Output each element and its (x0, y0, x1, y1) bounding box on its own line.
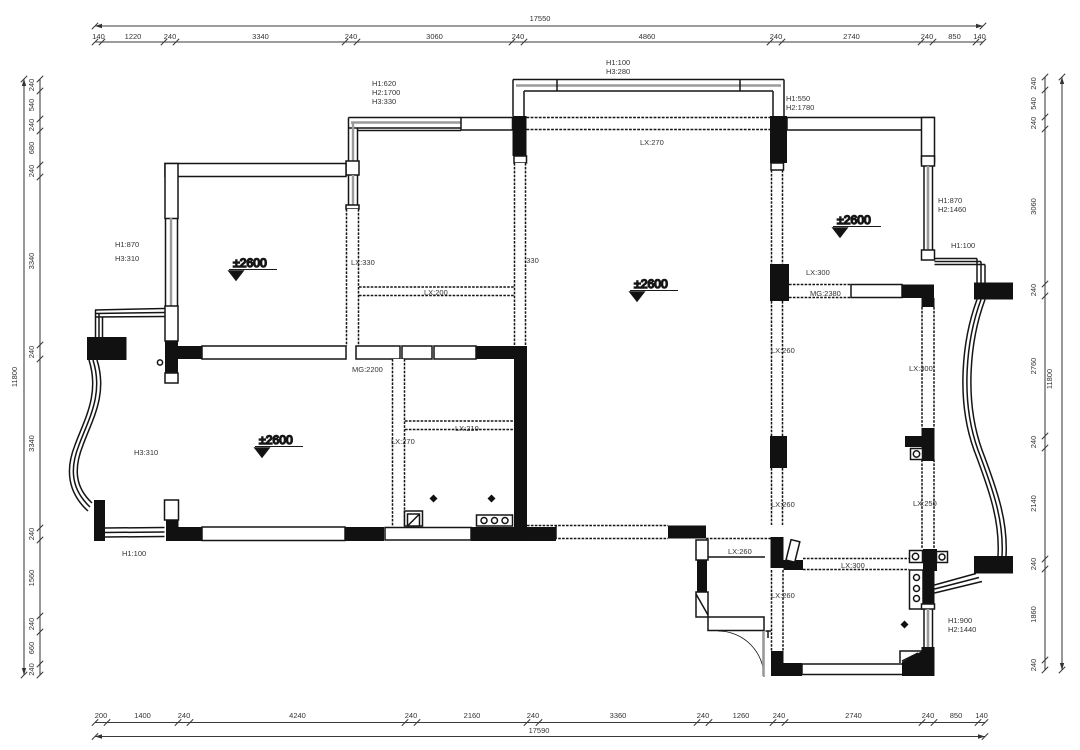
svg-text:LX:260: LX:260 (771, 591, 795, 600)
svg-text:LX:300: LX:300 (806, 268, 830, 277)
svg-text:140: 140 (92, 32, 105, 41)
svg-text:LX:260: LX:260 (771, 346, 795, 355)
svg-text:4860: 4860 (639, 32, 656, 41)
svg-text:2140: 2140 (1029, 495, 1038, 512)
svg-text:11800: 11800 (10, 367, 19, 387)
svg-text:240: 240 (697, 711, 710, 720)
svg-text:MG:2200: MG:2200 (352, 365, 383, 374)
svg-text:3340: 3340 (27, 253, 36, 270)
svg-text:LX:250: LX:250 (913, 499, 937, 508)
svg-text:H2:1440: H2:1440 (948, 625, 976, 634)
svg-text:240: 240 (164, 32, 177, 41)
svg-text:H3:310: H3:310 (134, 448, 158, 457)
svg-text:2740: 2740 (845, 711, 862, 720)
svg-text:2740: 2740 (843, 32, 860, 41)
svg-text:240: 240 (178, 711, 191, 720)
svg-text:240: 240 (1029, 284, 1038, 297)
svg-text:240: 240 (770, 32, 783, 41)
svg-text:140: 140 (973, 32, 986, 41)
svg-text:H2:1780: H2:1780 (786, 103, 814, 112)
svg-text:H2:1460: H2:1460 (938, 205, 966, 214)
svg-text:3340: 3340 (27, 435, 36, 452)
svg-text:1220: 1220 (125, 32, 142, 41)
svg-text:240: 240 (512, 32, 525, 41)
svg-text:240: 240 (527, 711, 540, 720)
svg-text:17590: 17590 (529, 726, 550, 735)
svg-text:LX:300: LX:300 (841, 561, 865, 570)
svg-text:240: 240 (27, 663, 36, 676)
svg-text:1260: 1260 (733, 711, 750, 720)
svg-text:LX:210: LX:210 (455, 424, 479, 433)
svg-text:680: 680 (27, 142, 36, 155)
svg-text:240: 240 (27, 165, 36, 178)
svg-text:3060: 3060 (1029, 198, 1038, 215)
svg-text:H1:550: H1:550 (786, 94, 810, 103)
svg-text:240: 240 (922, 711, 935, 720)
svg-text:660: 660 (27, 642, 36, 655)
svg-text:2760: 2760 (1029, 358, 1038, 375)
svg-text:240: 240 (27, 119, 36, 132)
svg-text:240: 240 (1029, 436, 1038, 449)
svg-text:540: 540 (1029, 97, 1038, 110)
svg-text:240: 240 (1029, 558, 1038, 571)
svg-text:140: 140 (975, 711, 988, 720)
svg-text:240: 240 (1029, 117, 1038, 130)
svg-text:4240: 4240 (289, 711, 306, 720)
svg-text:LX:260: LX:260 (771, 500, 795, 509)
svg-text:17550: 17550 (530, 14, 551, 23)
svg-text:11800: 11800 (1045, 369, 1054, 389)
svg-text:240: 240 (27, 79, 36, 92)
svg-text:H1:900: H1:900 (948, 616, 972, 625)
svg-text:H3:330: H3:330 (372, 97, 396, 106)
svg-text:H1:100: H1:100 (122, 549, 146, 558)
svg-text:H1:100: H1:100 (951, 241, 975, 250)
svg-text:LX:330: LX:330 (351, 258, 375, 267)
svg-text:H1:100: H1:100 (606, 58, 630, 67)
svg-text:1560: 1560 (27, 570, 36, 587)
svg-text:240: 240 (405, 711, 418, 720)
svg-text:240: 240 (921, 32, 934, 41)
svg-text:3360: 3360 (610, 711, 627, 720)
svg-text:MG:2380: MG:2380 (810, 289, 841, 298)
svg-text:850: 850 (950, 711, 963, 720)
svg-text:H1:620: H1:620 (372, 79, 396, 88)
svg-text:H3:280: H3:280 (606, 67, 630, 76)
svg-text:LX:260: LX:260 (728, 547, 752, 556)
svg-text:540: 540 (27, 99, 36, 112)
svg-text:240: 240 (773, 711, 786, 720)
svg-text:2160: 2160 (464, 711, 481, 720)
svg-text:3060: 3060 (426, 32, 443, 41)
svg-text:240: 240 (1029, 659, 1038, 672)
svg-text:1860: 1860 (1029, 606, 1038, 623)
svg-text:240: 240 (27, 528, 36, 541)
svg-text:H3:310: H3:310 (115, 254, 139, 263)
svg-text:240: 240 (27, 618, 36, 631)
svg-text:H1:870: H1:870 (938, 196, 962, 205)
svg-text:LX:300: LX:300 (909, 364, 933, 373)
svg-text:LX:200: LX:200 (424, 288, 448, 297)
svg-text:240: 240 (1029, 77, 1038, 90)
svg-text:H2:1700: H2:1700 (372, 88, 400, 97)
svg-text:850: 850 (948, 32, 961, 41)
svg-text:LX:270: LX:270 (391, 437, 415, 446)
svg-text:3340: 3340 (252, 32, 269, 41)
svg-text:240: 240 (27, 346, 36, 359)
svg-text:240: 240 (345, 32, 358, 41)
svg-text:200: 200 (95, 711, 108, 720)
svg-text:LX:270: LX:270 (640, 138, 664, 147)
svg-text:1400: 1400 (134, 711, 151, 720)
svg-text:H1:870: H1:870 (115, 240, 139, 249)
